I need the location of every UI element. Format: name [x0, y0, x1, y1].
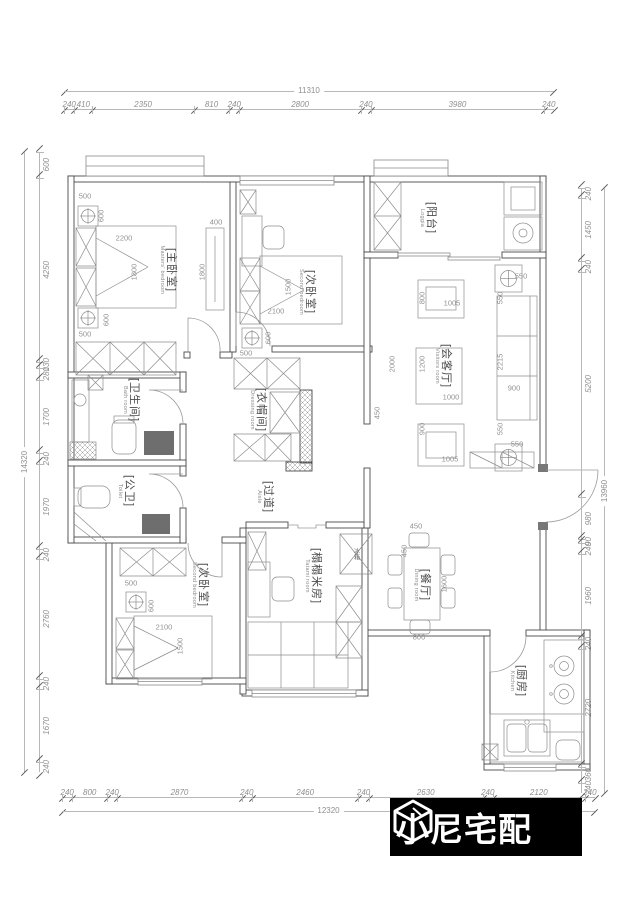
dim-right-total: 13960: [600, 188, 612, 793]
plan-dim-annotation: 2100: [268, 307, 285, 315]
master-nightstand: [76, 268, 96, 306]
bay-window-loggia: [374, 160, 448, 176]
nightstand: [116, 650, 134, 679]
desk: [242, 216, 262, 266]
doors: [149, 312, 598, 672]
dim-left-total: 14320: [20, 152, 32, 772]
floor-hatch: [70, 442, 96, 459]
shelf: [240, 190, 256, 214]
plan-dim-annotation: 600: [97, 210, 105, 223]
dim-segment: 2720: [578, 649, 592, 767]
window-second-bedroom-top: [240, 176, 334, 185]
plan-dim-annotation: 600: [102, 314, 110, 327]
room-label-aisle: [过道]Aisle: [256, 481, 274, 513]
room-label-bath-room: [卫生间]Bath room: [122, 378, 140, 422]
dim-segment: 1700: [36, 380, 50, 454]
room-label-dining-room: [餐厅]Dining room: [413, 569, 431, 602]
stove: [550, 656, 574, 704]
bed: [134, 616, 212, 679]
dim-segment: 810: [194, 100, 229, 113]
dressing-wardrobe: [270, 392, 300, 433]
plan-dim-annotation: 600: [264, 332, 272, 345]
plan-dim-annotation: 1500: [284, 279, 292, 296]
wash-counter: [144, 431, 174, 455]
plan-dim-annotation: 450: [410, 522, 423, 530]
master-wardrobe: [76, 342, 176, 375]
cabinet: [248, 532, 266, 570]
dining-chair: [409, 533, 429, 547]
plan-dim-annotation: 1000: [443, 393, 460, 401]
window-kitchen: [504, 764, 556, 771]
master-lamp-stand: [78, 206, 98, 226]
appliance: [504, 182, 542, 215]
plan-dim-annotation: 1800: [198, 264, 206, 281]
tatami-opening: [288, 525, 326, 528]
dim-top-total: 11310: [64, 84, 554, 96]
plan-dim-annotation: 500: [125, 579, 138, 587]
room-label-kitchen: [厨房]Kitchen: [509, 665, 527, 697]
dining-chair: [441, 555, 455, 575]
toilet: [74, 486, 110, 508]
dim-chain-right: 240145024052009809024019602402720360240: [578, 188, 592, 793]
dim-segment: 240: [544, 100, 554, 113]
dim-segment: 240: [578, 783, 592, 793]
lamp-stand: [126, 592, 146, 612]
dim-segment: 1450: [578, 198, 592, 261]
plan-dim-annotation: 2100: [156, 623, 173, 631]
tv-sideboard: [470, 452, 534, 468]
plan-dim-annotation: 2000: [388, 356, 396, 373]
plan-dim-annotation: 550: [496, 292, 504, 305]
wardrobe: [120, 548, 186, 576]
toilet-door: [149, 474, 183, 508]
plan-dim-annotation: 1600: [440, 576, 448, 593]
tatami-platform: [248, 622, 348, 688]
cabinet: [336, 622, 362, 658]
dim-segment: 4250: [36, 178, 50, 362]
plan-dim-annotation: 1005: [444, 299, 461, 307]
dim-segment: 2460: [252, 788, 358, 801]
plan-dim-annotation: 1200: [418, 356, 426, 373]
plan-dim-annotation: 550: [515, 272, 528, 280]
plan-dim-annotation: 500: [240, 349, 253, 357]
window-tatami: [252, 690, 356, 697]
vanity: [72, 380, 89, 442]
dim-segment: 980: [578, 497, 592, 539]
dining-chair: [388, 555, 402, 575]
plan-dim-annotation: 400: [210, 218, 223, 226]
plan-dim-annotation: 450: [373, 407, 381, 420]
dim-segment: 240: [36, 679, 50, 689]
dim-total-value: 14320: [20, 447, 29, 477]
plan-dim-annotation: 800: [418, 292, 426, 305]
plan-dim-annotation: 450: [400, 545, 408, 558]
dim-segment: 3980: [371, 100, 543, 113]
cube-logo-icon: [390, 798, 436, 844]
plan-dim-annotation: 2215: [496, 354, 504, 371]
dressing-wardrobe: [234, 434, 291, 461]
kitchen-sink: [504, 720, 550, 756]
dim-chain-top: 240410235081024028002403980240: [64, 100, 554, 113]
cabinet: [336, 586, 362, 622]
dim-segment: 2870: [117, 788, 241, 801]
desk-chair: [272, 577, 294, 601]
washing-machine: [504, 217, 542, 250]
room-label-second-bedroom-top: [次卧室]Second bedroom: [298, 269, 316, 315]
lamp-stand: [242, 328, 262, 348]
furniture: [70, 182, 584, 762]
dim-segment: 2760: [36, 559, 50, 679]
bath-door: [149, 390, 183, 424]
master-door: [188, 318, 220, 352]
loggia-cabinet: [374, 182, 401, 250]
floorplan-canvas: 11310 240410235081024028002403980240 240…: [0, 0, 640, 914]
master-lamp-stand: [78, 308, 98, 328]
plan-dim-annotation: 500: [79, 192, 92, 200]
plan-dim-annotation: 550: [511, 440, 524, 448]
dim-segment: 1960: [578, 554, 592, 639]
nightstand: [240, 291, 260, 324]
master-dresser: [206, 228, 224, 310]
room-label-dressing-room: [衣帽间]Dressing room: [249, 388, 267, 432]
room-label-toilet: [公卫]Toilet: [117, 475, 135, 507]
floorplan-drawing: [0, 0, 640, 914]
wash-counter: [142, 514, 170, 534]
plan-dim-annotation: 500: [79, 330, 92, 338]
dim-total-value: 12320: [313, 806, 343, 815]
dressing-wardrobe: [234, 358, 300, 389]
dim-total-value: 11310: [294, 86, 324, 95]
brand-logo: 小尼宅配: [390, 798, 582, 856]
dim-segment: 1670: [36, 689, 50, 761]
nightstand: [116, 618, 134, 649]
dim-total-value: 13960: [600, 475, 609, 505]
plan-dim-annotation: 2200: [116, 234, 133, 242]
plan-dim-annotation: 900: [508, 384, 521, 392]
plan-dim-annotation: 900: [418, 423, 426, 436]
dim-segment: 5200: [578, 272, 592, 497]
dim-segment: 1970: [36, 464, 50, 549]
dim-segment: 800: [72, 788, 107, 801]
sliding-door-loggia: [398, 253, 500, 260]
room-label-master-bedroom: [主卧室]Masters' bedroom: [159, 246, 177, 295]
plan-dim-annotation: 1005: [442, 455, 459, 463]
room-label-second-bedroom-bottom: [次卧室]Second bedroom: [191, 562, 209, 608]
desk-chair: [263, 226, 284, 249]
room-label-living-room: [会客厅]Visitors room: [434, 344, 452, 388]
dim-segment: 2800: [239, 100, 360, 113]
dim-segment: 240: [36, 762, 50, 772]
plan-dim-annotation: 600: [147, 600, 155, 613]
master-nightstand: [76, 228, 96, 266]
dim-segment: 2350: [92, 100, 194, 113]
plan-dim-annotation: 1800: [130, 264, 138, 281]
dim-chain-left: 6004250130280170024019702402760240167024…: [36, 152, 50, 772]
fridge-label: 冰箱: [352, 548, 361, 560]
plan-dim-annotation: 800: [413, 633, 426, 641]
nightstand: [240, 258, 260, 291]
bay-window-master: [86, 156, 204, 176]
plan-dim-annotation: 1500: [176, 638, 184, 655]
room-label-tatami-room: [榻榻米房]Tatami room: [304, 548, 322, 604]
plan-dim-annotation: 550: [496, 423, 504, 436]
dining-chair: [388, 588, 402, 608]
bin: [556, 740, 580, 760]
room-label-loggia: [阳台]Loggia: [419, 202, 437, 234]
